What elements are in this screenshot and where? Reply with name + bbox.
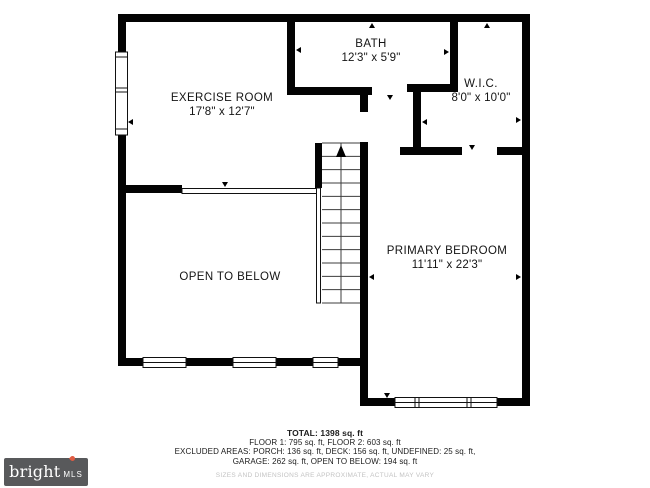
room-label-open-to-below: OPEN TO BELOW: [179, 271, 280, 285]
floor-areas-line: FLOOR 1: 795 sq. ft, FLOOR 2: 603 sq. ft: [0, 438, 650, 447]
room-dimensions: 11'11" x 22'3": [387, 259, 508, 273]
room-label-wic: W.I.C. 8'0" x 10'0": [451, 78, 510, 105]
staircase: [322, 143, 360, 303]
stairs-up-arrow-icon: [336, 145, 346, 157]
logo-suffix-text: MLS: [63, 470, 82, 479]
room-name: EXERCISE ROOM: [171, 92, 273, 106]
floor-plan-page: BATH 12'3" x 5'9" EXERCISE ROOM 17'8" x …: [0, 0, 650, 488]
room-name: W.I.C.: [451, 78, 510, 92]
room-label-primary-bedroom: PRIMARY BEDROOM 11'11" x 22'3": [387, 245, 508, 272]
logo-brand-text: bright: [9, 464, 60, 480]
room-name: PRIMARY BEDROOM: [387, 245, 508, 259]
window-left-wall: [116, 52, 128, 135]
window-bedroom-wall: [395, 398, 497, 408]
railing: [182, 188, 321, 303]
excluded-areas-line: EXCLUDED AREAS: PORCH: 136 sq. ft, DECK:…: [0, 447, 650, 456]
room-name: BATH: [341, 38, 400, 52]
floor-plan-drawing: [0, 0, 650, 488]
room-label-exercise-room: EXERCISE ROOM 17'8" x 12'7": [171, 92, 273, 119]
excluded-areas-line2: GARAGE: 262 sq. ft, OPEN TO BELOW: 194 s…: [0, 457, 650, 466]
room-name: OPEN TO BELOW: [179, 271, 280, 285]
disclaimer-line: SIZES AND DIMENSIONS ARE APPROXIMATE, AC…: [0, 471, 650, 480]
room-dimensions: 8'0" x 10'0": [451, 92, 510, 106]
brightmls-logo: bright MLS: [4, 458, 88, 486]
room-dimensions: 17'8" x 12'7": [171, 106, 273, 120]
area-summary: TOTAL: 1398 sq. ft FLOOR 1: 795 sq. ft, …: [0, 429, 650, 480]
total-area-line: TOTAL: 1398 sq. ft: [0, 429, 650, 438]
room-label-bath: BATH 12'3" x 5'9": [341, 38, 400, 65]
room-dimensions: 12'3" x 5'9": [341, 52, 400, 66]
